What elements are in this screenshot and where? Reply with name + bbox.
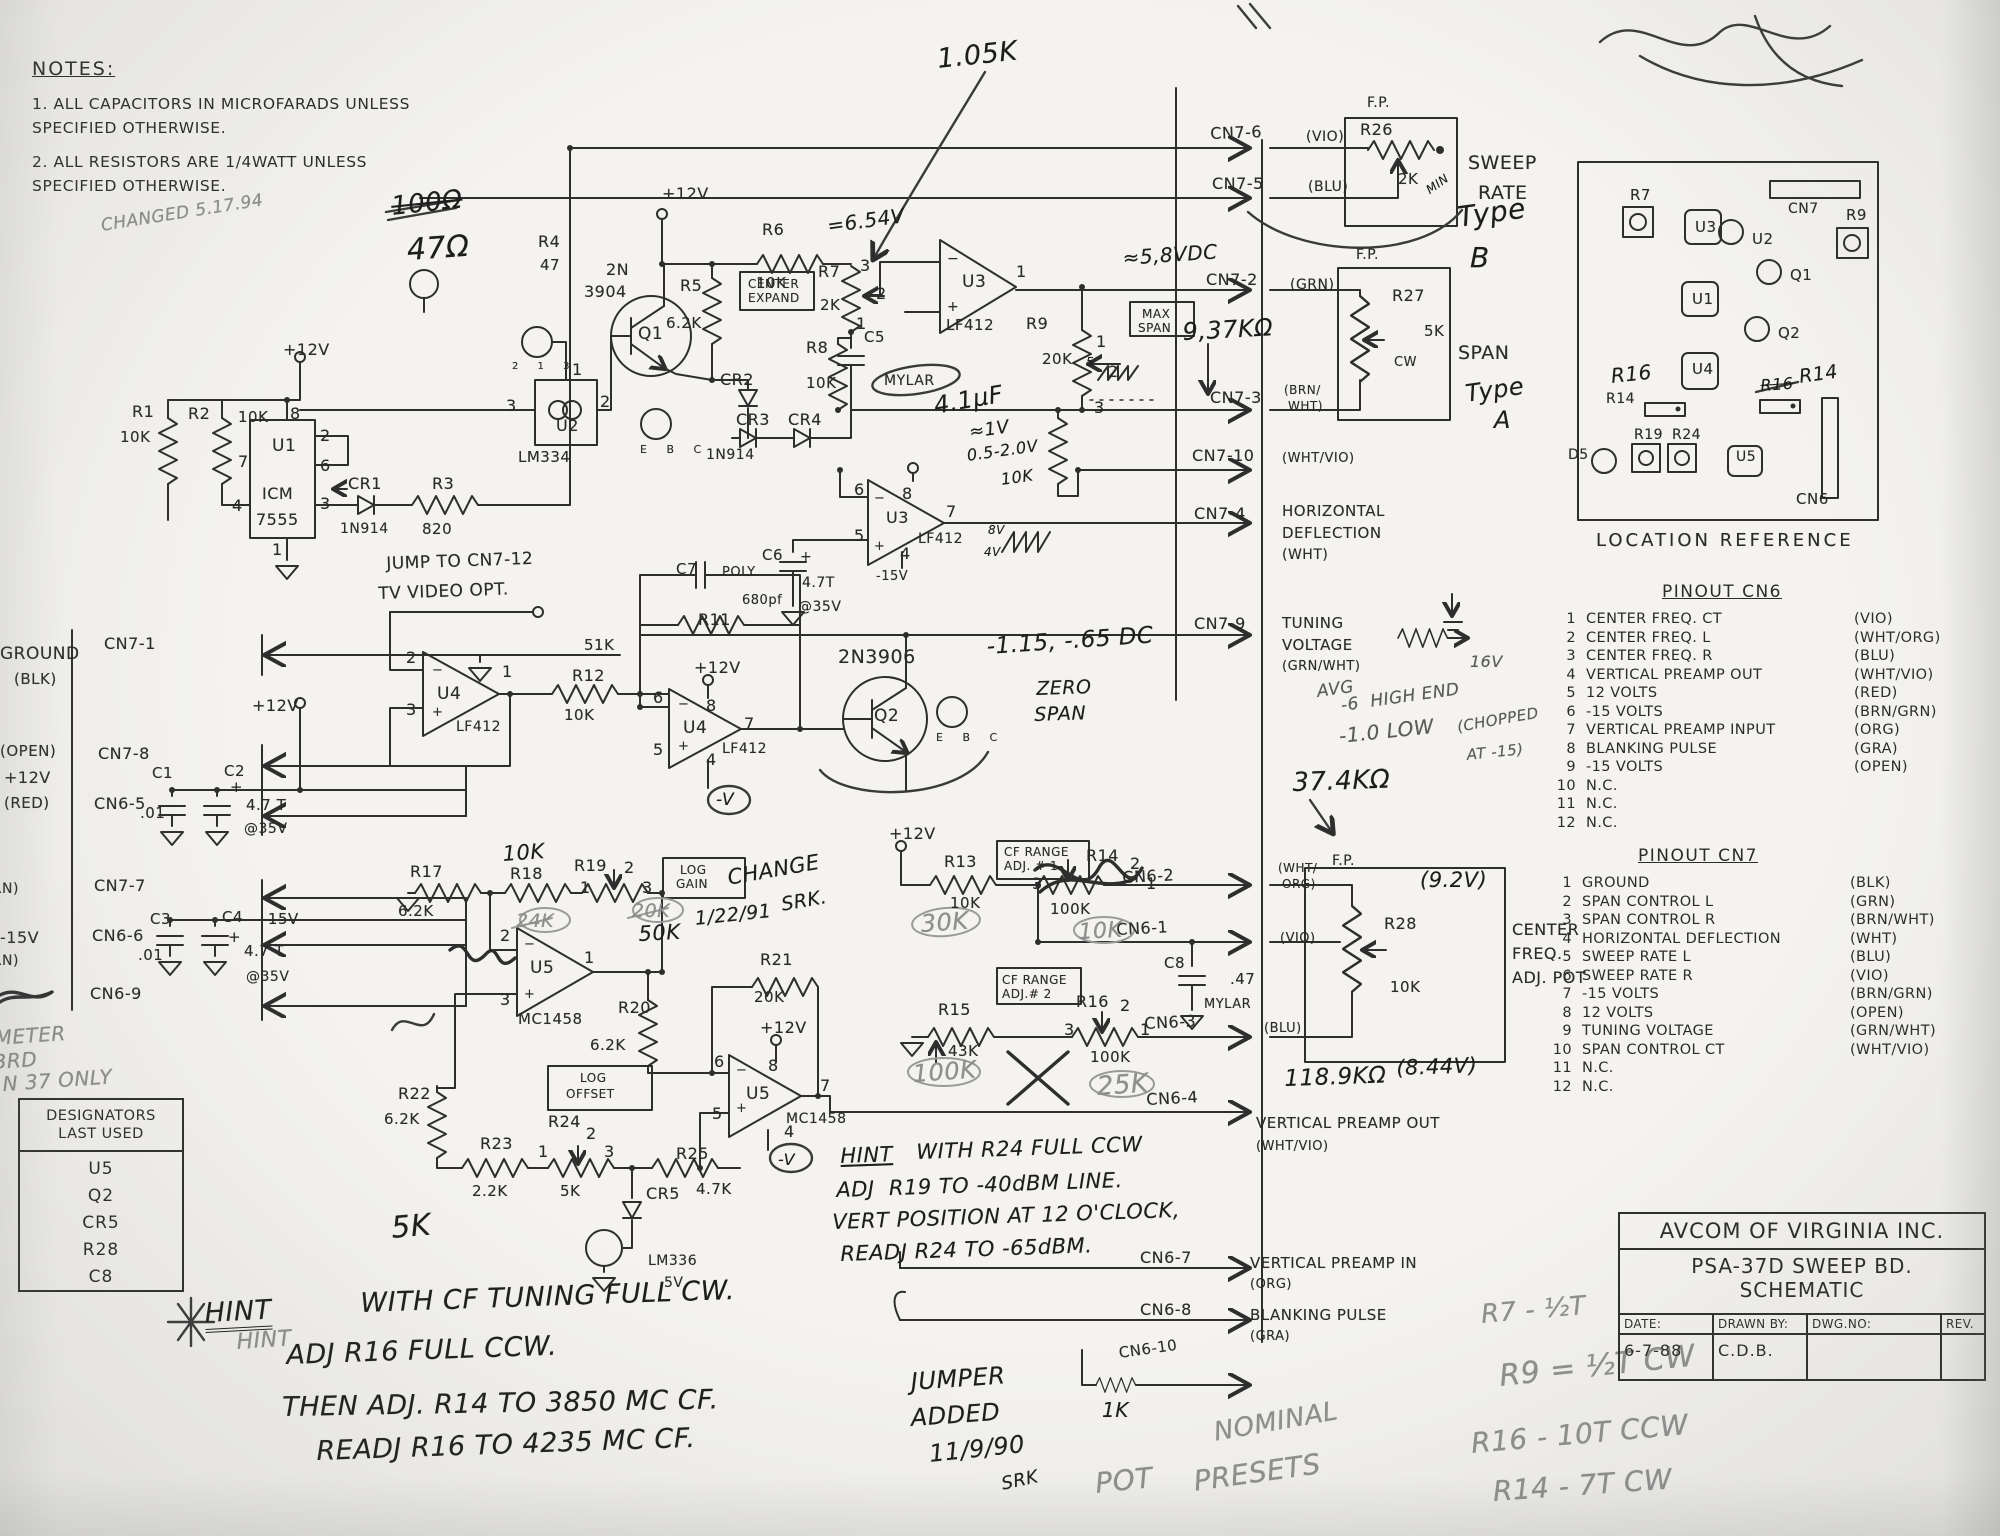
schematic-label: 2K: [1398, 172, 1418, 187]
wire-color-label: (WHT/VIO): [1282, 452, 1355, 465]
connector-pin-label: CN6-9: [90, 986, 142, 1002]
schematic-label: 8: [902, 486, 913, 502]
schematic-label: @35V: [798, 600, 841, 614]
pinout-row: 4VERTICAL PREAMP OUT(WHT/VIO): [1542, 666, 1984, 685]
schematic-label: LOG: [580, 1072, 607, 1084]
divider: [20, 1150, 182, 1152]
schematic-label: R19: [1634, 428, 1663, 442]
schematic-label: CW: [1394, 356, 1417, 369]
schematic-label: LM334: [518, 450, 570, 465]
handwritten-note: 8V: [988, 524, 1005, 536]
drawing-name-line1: PSA-37D SWEEP BD.: [1620, 1254, 1984, 1278]
schematic-label: MC1458: [786, 1112, 846, 1126]
schematic-label: (WHT/VIO): [1256, 1140, 1329, 1153]
schematic-label: (GRA): [1250, 1330, 1290, 1343]
pinout-row: 1CENTER FREQ. CT(VIO): [1542, 610, 1984, 629]
note-item: 2. ALL RESISTORS ARE 1/4WATT UNLESS SPEC…: [32, 150, 432, 198]
component-ref: R28: [1384, 916, 1417, 932]
schematic-label: VOLTAGE: [1282, 638, 1353, 653]
handwritten-note: READJ R16 TO 4235 MC CF.: [316, 1425, 696, 1465]
schematic-label: 10K: [806, 376, 836, 391]
schematic-label: C4: [222, 910, 243, 925]
schematic-label: 7: [238, 454, 249, 470]
schematic-label: −: [874, 492, 885, 505]
pencil-note: N 37 ONLY: [2, 1066, 113, 1094]
wire-color-label: (BLU): [1308, 180, 1348, 194]
handwritten-note: ≈1V: [968, 418, 1010, 441]
pinout-row: 3CENTER FREQ. R(BLU): [1542, 647, 1984, 666]
schematic-label: U5: [1736, 450, 1756, 464]
schematic-label: ADJ.# 2: [1002, 988, 1052, 1000]
schematic-label: Q1: [1790, 268, 1812, 283]
pinout-row: 812 VOLTS(OPEN): [1538, 1004, 1980, 1023]
handwritten-note: 10K: [502, 841, 545, 865]
schematic-label: R2: [188, 406, 210, 422]
signal-name: VERTICAL PREAMP IN: [1250, 1256, 1417, 1271]
schematic-label: @35V: [244, 822, 287, 836]
handwritten-note: ZERO: [1036, 678, 1092, 699]
schematic-label: 2: [624, 860, 635, 876]
pinout-row: 8BLANKING PULSE(GRA): [1542, 740, 1984, 759]
pinout-row: 12N.C.: [1538, 1078, 1980, 1097]
handwritten-note: Type: [1464, 374, 1526, 406]
schematic-label: 47: [540, 258, 560, 273]
schematic-label: +12V: [283, 342, 330, 358]
drawn-by-value: C.D.B.: [1714, 1335, 1806, 1366]
schematic-label: MAX: [1142, 308, 1170, 320]
schematic-label: 6: [653, 690, 664, 706]
schematic-label: 1: [1096, 334, 1107, 350]
schematic-label: R16: [1076, 994, 1109, 1010]
schematic-label: DEFLECTION: [1282, 526, 1382, 541]
schematic-label: LM336: [648, 1254, 697, 1268]
schematic-label: 3: [406, 702, 417, 718]
schematic-label: (ORG): [1250, 1278, 1292, 1291]
schematic-label: 10K: [564, 708, 594, 723]
schematic-label: R14: [1086, 848, 1119, 864]
schematic-label: R25: [676, 1146, 709, 1162]
schematic-label: 5K: [1424, 324, 1444, 339]
schematic-label: JUMP TO CN7-12: [386, 551, 534, 573]
handwritten-note: HINT: [840, 1144, 893, 1167]
schematic-label: 2N3906: [838, 648, 916, 667]
schematic-label: CR3: [736, 412, 770, 428]
handwritten-note: A: [1494, 408, 1511, 432]
pinout-cn6-title: PINOUT CN6: [1662, 582, 1984, 602]
handwritten-note: 4.1μF: [932, 382, 1005, 418]
connector-pin-label: CN6-3: [1144, 1013, 1197, 1032]
schematic-label: +: [947, 300, 959, 314]
schematic-label: R20: [618, 1000, 651, 1016]
pencil-note: METER: [0, 1023, 66, 1048]
pencil-note: 24K: [516, 912, 554, 931]
schematic-label: U1: [1692, 292, 1714, 307]
schematic-label: .47: [1230, 972, 1255, 987]
pinout-cn7-title: PINOUT CN7: [1638, 846, 1980, 866]
schematic-label: ICM: [262, 486, 293, 502]
component-ref: U2: [556, 418, 579, 434]
schematic-label: R24: [548, 1114, 581, 1130]
title-block: AVCOM OF VIRGINIA INC. PSA-37D SWEEP BD.…: [1618, 1212, 1986, 1377]
schematic-label: MYLAR: [884, 374, 935, 388]
connector-pin-label: CN7-6: [1210, 124, 1262, 142]
schematic-label: GROUND: [0, 646, 80, 663]
pencil-note: POT: [1094, 1464, 1154, 1498]
schematic-label: +: [678, 740, 689, 753]
handwritten-note: ADJ R19 TO -40dBM LINE.: [836, 1170, 1123, 1201]
schematic-label: WHT): [1288, 400, 1323, 412]
handwritten-note: 16V: [1470, 654, 1503, 670]
schematic-label: R18: [510, 866, 543, 882]
component-ref: U4: [437, 686, 461, 703]
wire-color-label: (GRN): [1290, 278, 1334, 292]
schematic-label: R21: [760, 952, 793, 968]
component-ref: U3: [886, 510, 909, 526]
pencil-note: R7 - ½T: [1480, 1293, 1587, 1328]
drawn-by-label: DRAWN BY:: [1714, 1315, 1806, 1335]
component-ref: R26: [1360, 122, 1393, 138]
schematic-label: +: [432, 706, 443, 719]
schematic-label: F.P.: [1332, 854, 1355, 868]
wire-color-label: (WHT/: [1278, 862, 1317, 874]
schematic-label: R24: [1672, 428, 1701, 442]
schematic-label: LOCATION REFERENCE: [1596, 532, 1854, 550]
schematic-label: ORG): [1282, 878, 1316, 890]
schematic-label: 820: [422, 522, 452, 537]
schematic-label: 3: [500, 992, 511, 1008]
schematic-label: R11: [698, 612, 731, 628]
schematic-label: 8: [706, 698, 717, 714]
schematic-label: LF412: [722, 742, 767, 756]
schematic-label: R9: [1846, 208, 1867, 223]
schematic-label: -15V: [0, 930, 39, 946]
schematic-label: 6: [854, 482, 865, 498]
schematic-label: R22: [398, 1086, 431, 1102]
handwritten-note: WITH R24 FULL CCW: [916, 1134, 1143, 1163]
schematic-label: MC1458: [518, 1012, 583, 1027]
schematic-label: R15: [938, 1002, 971, 1018]
schematic-label: −: [432, 664, 443, 677]
schematic-label: R8: [806, 340, 828, 356]
schematic-label: E B C: [936, 732, 1005, 743]
schematic-label: 1: [538, 1144, 549, 1160]
handwritten-note: -V: [716, 792, 734, 809]
schematic-label: 4.7 T: [246, 798, 286, 813]
schematic-label: 8: [290, 406, 301, 422]
schematic-label: +: [874, 540, 885, 553]
handwritten-note: AT -15): [1466, 742, 1524, 763]
schematic-label: CF RANGE: [1004, 846, 1069, 858]
schematic-label: 3: [1094, 400, 1105, 416]
schematic-label: U4: [1692, 362, 1714, 377]
drawing-name: PSA-37D SWEEP BD. SCHEMATIC: [1618, 1250, 1986, 1315]
schematic-label: +: [800, 550, 812, 564]
schematic-label: C1: [152, 766, 173, 781]
connector-pin-label: CN7-9: [1194, 616, 1246, 632]
connector-pin-label: CN7-3: [1210, 390, 1262, 406]
schematic-label: EXPAND: [748, 292, 800, 304]
schematic-label: 6.2K: [590, 1038, 626, 1053]
schematic-label: +12V: [889, 826, 936, 842]
wire-color-label: (BRN/: [1284, 384, 1321, 396]
schematic-label: R23: [480, 1136, 513, 1152]
handwritten-note: -1.0 LOW: [1338, 716, 1435, 746]
connector-pin-label: CN7-5: [1212, 176, 1264, 192]
schematic-label: 6.2K: [666, 316, 702, 331]
signal-name: SPAN: [1458, 344, 1510, 363]
schematic-label: .01: [140, 806, 165, 821]
wire-color-label: (VIO): [1306, 130, 1344, 144]
handwritten-note: -6 HIGH END: [1340, 681, 1461, 714]
handwritten-note: R16: [1760, 376, 1794, 394]
schematic-label: 1: [584, 950, 595, 966]
schematic-label: R1: [132, 404, 154, 420]
handwritten-note: B: [1470, 244, 1490, 272]
schematic-label: -15V: [876, 570, 908, 583]
schematic-label: R6: [762, 222, 784, 238]
handwritten-note: 1K: [1102, 1400, 1129, 1420]
handwritten-note: 118.9KΩ: [1284, 1064, 1387, 1091]
schematic-label: 4: [900, 546, 911, 562]
schematic-label: 3: [1064, 1022, 1075, 1038]
schematic-label: +12V: [252, 698, 299, 714]
designator-item: R28: [20, 1240, 182, 1260]
handwritten-note: 1.05K: [936, 38, 1019, 73]
drawing-name-line2: SCHEMATIC: [1620, 1278, 1984, 1302]
schematic-label: C8: [1164, 956, 1185, 971]
handwritten-note: SRK: [1000, 1468, 1040, 1493]
handwritten-note: CHANGE: [726, 852, 821, 889]
pencil-note: 25K: [1096, 1070, 1149, 1100]
schematic-label: U2: [1752, 232, 1774, 247]
component-ref: Q1: [638, 326, 663, 343]
schematic-label: ADJ. # 1: [1004, 860, 1058, 872]
connector-pin-label: CN7-2: [1206, 272, 1258, 288]
schematic-label: LF412: [946, 318, 994, 333]
schematic-label: (RED): [4, 796, 50, 811]
designators-title: DESIGNATORS: [20, 1108, 182, 1124]
schematic-label: 2: [876, 286, 887, 302]
schematic-label: 2: [1120, 998, 1131, 1014]
schematic-label: (GRN/WHT): [1282, 660, 1360, 673]
pinout-cn7-table: PINOUT CN7 1GROUND(BLK)2SPAN CONTROL L(G…: [1538, 846, 1980, 1097]
schematic-label: E B C: [640, 444, 709, 455]
schematic-label: CR2: [720, 372, 754, 388]
handwritten-note: R16: [1610, 362, 1653, 386]
handwritten-note: 11/9/90: [928, 1432, 1026, 1466]
component-ref: U5: [746, 1086, 770, 1103]
pinout-row: 1GROUND(BLK): [1538, 874, 1980, 893]
schematic-label: C6: [762, 548, 783, 563]
schematic-label: CF RANGE: [1002, 974, 1067, 986]
schematic-label: 20K: [754, 990, 784, 1005]
schematic-label: 20K: [1042, 352, 1072, 367]
schematic-label: 6.2K: [398, 904, 434, 919]
schematic-label: 1: [1016, 264, 1027, 280]
handwritten-note: 1/22/91: [694, 902, 772, 929]
pencil-note: PRESETS: [1192, 1450, 1323, 1496]
pencil-note: HINT: [236, 1328, 292, 1354]
schematic-label: 4.7K: [696, 1182, 732, 1197]
schematic-label: R5: [680, 278, 702, 294]
schematic-label: 3: [604, 1144, 615, 1160]
handwritten-note: Type: [1456, 195, 1527, 232]
handwritten-note: -1.15, -.65 DC: [986, 624, 1154, 659]
component-ref: U5: [530, 960, 554, 977]
schematic-label: −: [736, 1064, 747, 1077]
handwritten-note: THEN ADJ. R14 TO 3850 MC CF.: [282, 1386, 719, 1421]
schematic-label: 3: [642, 880, 653, 896]
handwritten-note: ≈5,8VDC: [1122, 241, 1218, 268]
schematic-label: 4.7T: [802, 576, 835, 590]
schematic-label: 7555: [256, 512, 299, 528]
handwritten-note: =6.54V: [826, 205, 906, 236]
schematic-label: 2: [600, 394, 611, 410]
pinout-cn6-table: PINOUT CN6 1CENTER FREQ. CT(VIO)2CENTER …: [1542, 582, 1984, 833]
schematic-label: LF412: [918, 532, 963, 546]
schematic-label: 6: [320, 458, 331, 474]
rev-label: REV.: [1942, 1315, 1984, 1335]
schematic-label: 6: [714, 1054, 725, 1070]
handwritten-note: 9,37KΩ: [1182, 315, 1274, 344]
pinout-row: 3SPAN CONTROL R(BRN/WHT): [1538, 911, 1980, 930]
schematic-label: +: [228, 930, 241, 945]
schematic-label: +: [230, 780, 243, 795]
schematic-label: +12V: [662, 186, 709, 202]
schematic-label: R14: [1606, 392, 1635, 406]
pinout-row: 11N.C.: [1542, 795, 1984, 814]
designator-item: C8: [20, 1267, 182, 1287]
company-name: AVCOM OF VIRGINIA INC.: [1618, 1212, 1986, 1250]
schematic-label: U3: [1695, 220, 1717, 235]
dwg-no-value: [1808, 1335, 1940, 1347]
schematic-label: 1: [502, 664, 513, 680]
schematic-label: 2.2K: [472, 1184, 508, 1199]
connector-pin-label: CN7-7: [94, 878, 146, 894]
handwritten-note: VERT POSITION AT 12 O'CLOCK,: [832, 1200, 1180, 1233]
note-item: 1. ALL CAPACITORS IN MICROFARADS UNLESS …: [32, 92, 432, 140]
connector-pin-label: CN6-2: [1122, 867, 1175, 886]
schematic-label: 5: [653, 742, 664, 758]
handwritten-note: JUMPER: [910, 1363, 1006, 1394]
connector-pin-label: CN7-1: [104, 636, 156, 652]
connector-pin-label: CN6-10: [1118, 1338, 1178, 1361]
pinout-row: 10SPAN CONTROL CT(WHT/VIO): [1538, 1041, 1980, 1060]
handwritten-note: (8.44V): [1396, 1055, 1478, 1079]
signal-name: BLANKING PULSE: [1250, 1308, 1387, 1323]
schematic-label: (BRN/GRN): [0, 882, 19, 896]
schematic-label: 5: [854, 528, 865, 544]
handwritten-note: 5: [1086, 356, 1094, 368]
signal-name: HORIZONTAL: [1282, 504, 1385, 519]
schematic-page: CHANGED 5.17.94100Ω47Ω1.05KGROUND(BLK)CN…: [0, 0, 2000, 1536]
schematic-label: 3: [506, 398, 517, 414]
handwritten-note: ADJ R16 FULL CCW.: [286, 1333, 558, 1369]
pinout-row: 6-15 VOLTS(BRN/GRN): [1542, 703, 1984, 722]
schematic-label: F.P.: [1356, 248, 1379, 262]
connector-pin-label: CN6-5: [94, 796, 146, 812]
schematic-label: 10K: [1390, 980, 1420, 995]
schematic-label: 5: [712, 1106, 723, 1122]
handwritten-note: SRK.: [780, 888, 828, 915]
schematic-label: F.P.: [1367, 96, 1390, 110]
schematic-label: 2: [1108, 364, 1119, 380]
schematic-label: 2: [586, 1126, 597, 1142]
schematic-label: 680pf: [742, 594, 782, 607]
schematic-label: 2 1 3: [512, 362, 577, 372]
designator-item: CR5: [20, 1213, 182, 1233]
schematic-label: 3: [1032, 876, 1043, 892]
schematic-label: 6.2K: [384, 1112, 420, 1127]
connector-pin-label: CN6-8: [1140, 1302, 1192, 1318]
connector-pin-label: CN6-7: [1140, 1250, 1192, 1266]
schematic-label: 3: [860, 258, 871, 274]
schematic-label: CENTER: [748, 278, 799, 290]
schematic-label: −: [524, 938, 535, 951]
schematic-label: OFFSET: [566, 1088, 615, 1100]
schematic-label: 7: [946, 504, 957, 520]
schematic-label: D5: [1568, 448, 1589, 462]
pinout-row: 9TUNING VOLTAGE(GRN/WHT): [1538, 1022, 1980, 1041]
schematic-label: R13: [944, 854, 977, 870]
handwritten-note: 5K: [390, 1211, 432, 1244]
date-value: 6-7-88: [1620, 1335, 1712, 1366]
pencil-note: R14 - 7T CW: [1492, 1465, 1673, 1505]
pinout-row: 5SWEEP RATE L(BLU): [1538, 948, 1980, 967]
schematic-label: R7: [1630, 188, 1651, 203]
component-ref: Q2: [874, 708, 899, 725]
schematic-label: C2: [224, 764, 245, 779]
pinout-row: 512 VOLTS(RED): [1542, 684, 1984, 703]
handwritten-note: WITH CF TUNING FULL CW.: [360, 1277, 735, 1317]
schematic-label: +12V: [4, 770, 51, 786]
schematic-label: GAIN: [676, 878, 708, 890]
schematic-label: R3: [432, 476, 454, 492]
schematic-label: 5K: [560, 1184, 580, 1199]
schematic-label: 1N914: [706, 448, 755, 462]
schematic-label: (OPEN): [0, 744, 56, 759]
schematic-label: 7: [744, 716, 755, 732]
schematic-label: +: [736, 1102, 747, 1115]
schematic-label: 2N: [606, 262, 629, 278]
schematic-label: 8: [768, 1058, 779, 1074]
connector-pin-label: CN6-4: [1146, 1089, 1199, 1108]
connector-pin-label: CN6-1: [1116, 919, 1169, 938]
schematic-label: R19: [574, 858, 607, 874]
schematic-label: 4: [232, 498, 243, 514]
pencil-note: 20K: [632, 902, 670, 921]
schematic-label: C3: [150, 912, 171, 927]
schematic-label: −: [678, 698, 689, 711]
pinout-row: 7VERTICAL PREAMP INPUT(ORG): [1542, 721, 1984, 740]
designator-item: U5: [20, 1159, 182, 1179]
rev-value: [1942, 1335, 1984, 1347]
schematic-label: CR1: [348, 476, 382, 492]
designator-item: Q2: [20, 1186, 182, 1206]
handwritten-note: -V: [778, 1152, 795, 1168]
schematic-label: (BRN/GRN): [0, 954, 19, 968]
designators-box: DESIGNATORS LAST USED U5Q2CR5R28C8: [18, 1098, 184, 1292]
component-ref: U3: [962, 274, 986, 291]
signal-name: VERTICAL PREAMP OUT: [1256, 1116, 1440, 1131]
notes-heading: NOTES:: [32, 58, 462, 80]
schematic-label: 4: [784, 1124, 795, 1140]
pinout-row: 10N.C.: [1542, 777, 1984, 796]
pinout-row: 11N.C.: [1538, 1059, 1980, 1078]
pinout-row: 4HORIZONTAL DEFLECTION(WHT): [1538, 930, 1980, 949]
connector-pin-label: CN7-10: [1192, 448, 1254, 464]
pinout-row: 9-15 VOLTS(OPEN): [1542, 758, 1984, 777]
